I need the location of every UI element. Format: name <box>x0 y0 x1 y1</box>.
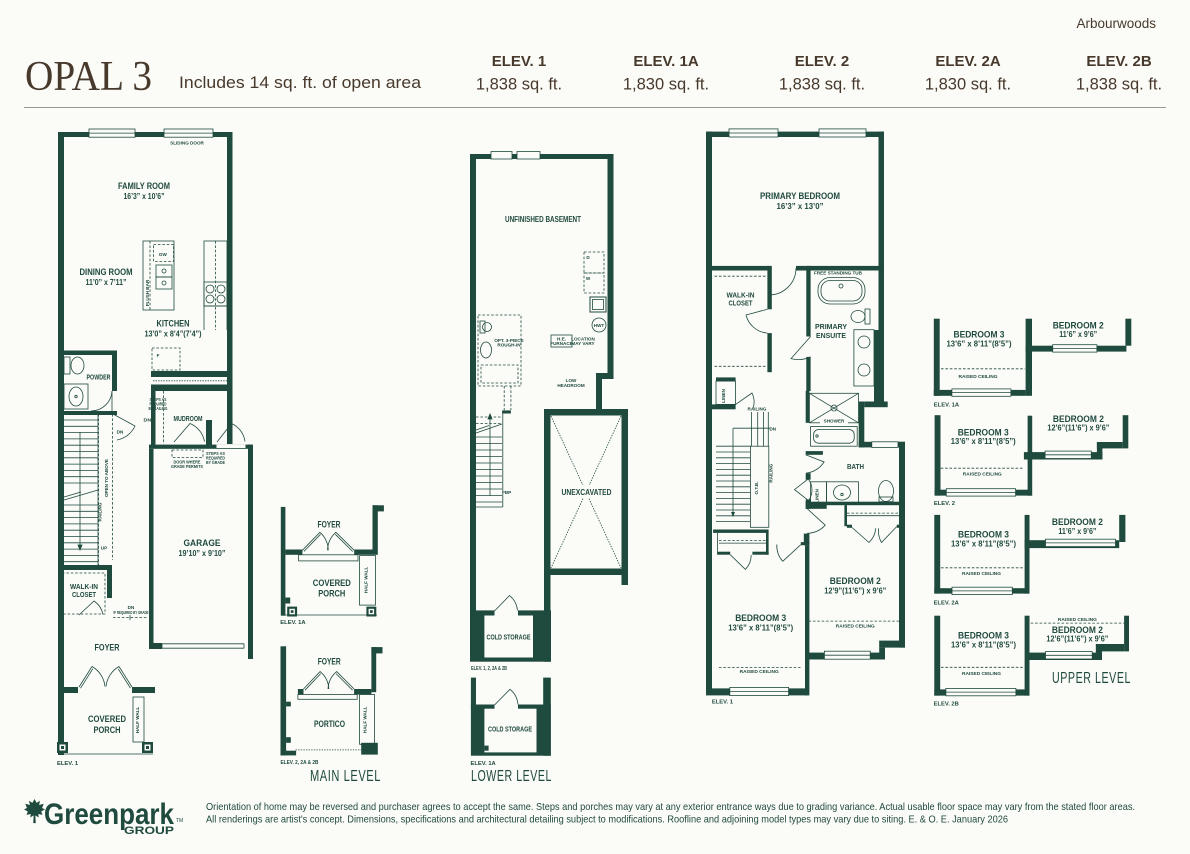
svg-text:OPAL 3: OPAL 3 <box>25 54 152 100</box>
svg-text:RAILING: RAILING <box>98 502 103 521</box>
svg-text:TM: TM <box>176 818 183 824</box>
svg-text:12’6”(11’6”) x 9’6”: 12’6”(11’6”) x 9’6” <box>1046 634 1108 644</box>
svg-text:Orientation of home may be rev: Orientation of home may be reversed and … <box>206 801 1135 813</box>
svg-text:PORTICO: PORTICO <box>314 719 345 730</box>
svg-text:COLD STORAGE: COLD STORAGE <box>487 635 531 642</box>
svg-text:13’6” x 8’11”(8’5”): 13’6” x 8’11”(8’5”) <box>728 623 793 633</box>
svg-text:W: W <box>586 276 591 281</box>
svg-text:GRADE PERMITS: GRADE PERMITS <box>171 464 203 469</box>
svg-text:LINEN: LINEN <box>721 388 726 402</box>
svg-text:RAISED CEILING: RAISED CEILING <box>740 669 779 674</box>
svg-text:1,838 sq. ft.: 1,838 sq. ft. <box>476 76 562 94</box>
svg-text:MUDROOM: MUDROOM <box>174 416 203 423</box>
svg-text:COLD STORAGE: COLD STORAGE <box>488 727 532 734</box>
svg-text:D: D <box>586 255 590 260</box>
svg-text:1,838 sq. ft.: 1,838 sq. ft. <box>779 76 865 94</box>
svg-text:HALF WALL: HALF WALL <box>363 706 368 733</box>
svg-text:Includes 14 sq. ft. of open ar: Includes 14 sq. ft. of open area <box>179 74 422 92</box>
svg-text:RAISED CEILING: RAISED CEILING <box>963 472 1002 477</box>
svg-text:RAILING: RAILING <box>748 407 767 412</box>
svg-text:UPPER LEVEL: UPPER LEVEL <box>1052 670 1131 687</box>
svg-text:DN: DN <box>117 430 124 435</box>
svg-text:HWT: HWT <box>594 323 605 328</box>
svg-text:PORCH: PORCH <box>318 589 345 600</box>
svg-text:LINEN: LINEN <box>815 488 820 502</box>
svg-text:F: F <box>157 353 160 358</box>
svg-text:SHOWER: SHOWER <box>824 419 845 424</box>
svg-text:1,830 sq. ft.: 1,830 sq. ft. <box>925 76 1011 94</box>
svg-text:MAY VARY: MAY VARY <box>571 341 594 346</box>
svg-text:UP: UP <box>505 490 511 495</box>
svg-text:ELEV. 2B: ELEV. 2B <box>934 701 959 707</box>
svg-text:IF REQUIRED BY GRADE: IF REQUIRED BY GRADE <box>114 610 149 615</box>
svg-text:ELEV. 2: ELEV. 2 <box>934 501 955 507</box>
svg-text:FURNACE: FURNACE <box>550 341 572 346</box>
svg-text:UNFINISHED BASEMENT: UNFINISHED BASEMENT <box>505 214 582 224</box>
svg-text:SLIDING DOOR: SLIDING DOOR <box>170 141 204 146</box>
svg-text:11’6” x 9’6”: 11’6” x 9’6” <box>1059 329 1097 339</box>
svg-text:1,830 sq. ft.: 1,830 sq. ft. <box>623 76 709 94</box>
svg-text:ELEV. 1, 2, 2A & 2B: ELEV. 1, 2, 2A & 2B <box>471 666 507 672</box>
svg-text:13’6” x 8’11”(8’5”): 13’6” x 8’11”(8’5”) <box>951 539 1016 549</box>
svg-text:ELEV. 1A: ELEV. 1A <box>471 761 497 767</box>
svg-text:13’6” x 8’11”(8’5”): 13’6” x 8’11”(8’5”) <box>951 436 1016 446</box>
svg-text:12’9”(11’6”) x 9’6”: 12’9”(11’6”) x 9’6” <box>824 586 886 596</box>
svg-text:Arbourwoods: Arbourwoods <box>1076 16 1156 31</box>
svg-text:ELEV. 2: ELEV. 2 <box>795 53 849 70</box>
svg-text:11’6” x 9’6”: 11’6” x 9’6” <box>1058 526 1096 536</box>
svg-text:WALK-IN: WALK-IN <box>727 293 755 300</box>
svg-text:UNEXCAVATED: UNEXCAVATED <box>562 487 612 497</box>
svg-text:BATH: BATH <box>847 464 864 471</box>
svg-text:LOWER LEVEL: LOWER LEVEL <box>471 768 552 785</box>
svg-text:FOYER: FOYER <box>318 657 341 668</box>
svg-text:RAISED CEILING: RAISED CEILING <box>836 624 875 629</box>
svg-text:HALF WALL: HALF WALL <box>363 567 368 594</box>
svg-text:13’6” x 8’11”(8’5”): 13’6” x 8’11”(8’5”) <box>947 339 1012 349</box>
svg-text:ELEV. 1: ELEV. 1 <box>712 700 734 706</box>
svg-text:ELEV. 1: ELEV. 1 <box>492 53 546 70</box>
svg-text:PORCH: PORCH <box>94 725 121 736</box>
svg-text:ELEV. 2B: ELEV. 2B <box>1086 53 1151 70</box>
svg-text:CLOSET: CLOSET <box>729 301 754 308</box>
svg-text:All renderings are artist's co: All renderings are artist's concept. Dim… <box>206 814 1008 826</box>
svg-text:COVERED: COVERED <box>88 714 126 725</box>
svg-text:RAISED CEILING: RAISED CEILING <box>962 571 1001 576</box>
svg-text:ELEV. 2, 2A & 2B: ELEV. 2, 2A & 2B <box>281 760 319 766</box>
svg-text:ELEV. 1A: ELEV. 1A <box>934 403 960 409</box>
svg-text:ELEV. 2A: ELEV. 2A <box>935 53 1000 70</box>
svg-text:DN→: DN→ <box>144 418 157 423</box>
svg-text:WALK-IN: WALK-IN <box>70 584 98 591</box>
svg-text:DN: DN <box>769 427 776 432</box>
svg-text:ELEV. 1A: ELEV. 1A <box>633 53 698 70</box>
svg-text:1,838 sq. ft.: 1,838 sq. ft. <box>1076 76 1162 94</box>
svg-text:POWDER: POWDER <box>87 375 111 382</box>
svg-text:BY GRADE: BY GRADE <box>206 460 225 465</box>
svg-text:ELEV. 1: ELEV. 1 <box>57 761 79 767</box>
svg-text:GROUP: GROUP <box>124 825 174 837</box>
svg-text:FOYER: FOYER <box>318 520 341 531</box>
svg-text:BY RAILING: BY RAILING <box>149 406 168 411</box>
svg-text:UP: UP <box>101 546 107 551</box>
svg-text:DW: DW <box>159 252 167 257</box>
svg-text:FOYER: FOYER <box>95 643 120 654</box>
svg-text:HEADROOM: HEADROOM <box>557 383 584 388</box>
svg-text:RAISED CEILING: RAISED CEILING <box>962 671 1001 676</box>
svg-text:16’3” x 10’6”: 16’3” x 10’6” <box>124 191 165 201</box>
svg-text:13’0” x 8’4”(7’4”): 13’0” x 8’4”(7’4”) <box>145 329 202 339</box>
svg-text:PRIMARY: PRIMARY <box>815 324 847 331</box>
svg-text:12’6”(11’6”) x 9’6”: 12’6”(11’6”) x 9’6” <box>1047 423 1109 433</box>
svg-text:19’10” x 9’10”: 19’10” x 9’10” <box>179 548 226 558</box>
svg-text:CLOSET: CLOSET <box>72 592 97 599</box>
svg-text:11’0” x 7’11”: 11’0” x 7’11” <box>86 277 127 287</box>
svg-text:RAISED CEILING: RAISED CEILING <box>959 374 998 379</box>
svg-text:MAIN LEVEL: MAIN LEVEL <box>310 768 381 785</box>
svg-text:FLUSH BAR: FLUSH BAR <box>145 279 150 306</box>
svg-text:16’3” x 13’0”: 16’3” x 13’0” <box>777 201 824 211</box>
svg-text:ROUGH-IN: ROUGH-IN <box>497 343 521 348</box>
svg-text:COVERED: COVERED <box>313 578 351 589</box>
svg-text:RAILING: RAILING <box>769 463 774 482</box>
svg-text:13’6” x 8’11”(8’5”): 13’6” x 8’11”(8’5”) <box>951 639 1016 649</box>
svg-text:ELEV. 1A: ELEV. 1A <box>280 620 306 626</box>
svg-text:ENSUITE: ENSUITE <box>816 333 846 340</box>
svg-text:O.T.B.: O.T.B. <box>754 481 759 494</box>
svg-text:FREE STANDING TUB: FREE STANDING TUB <box>814 271 863 276</box>
svg-text:OPEN TO ABOVE: OPEN TO ABOVE <box>104 459 109 497</box>
svg-text:ELEV. 2A: ELEV. 2A <box>934 601 960 607</box>
svg-text:RAISED CEILING: RAISED CEILING <box>1058 617 1097 622</box>
svg-text:HALF WALL: HALF WALL <box>135 707 140 734</box>
